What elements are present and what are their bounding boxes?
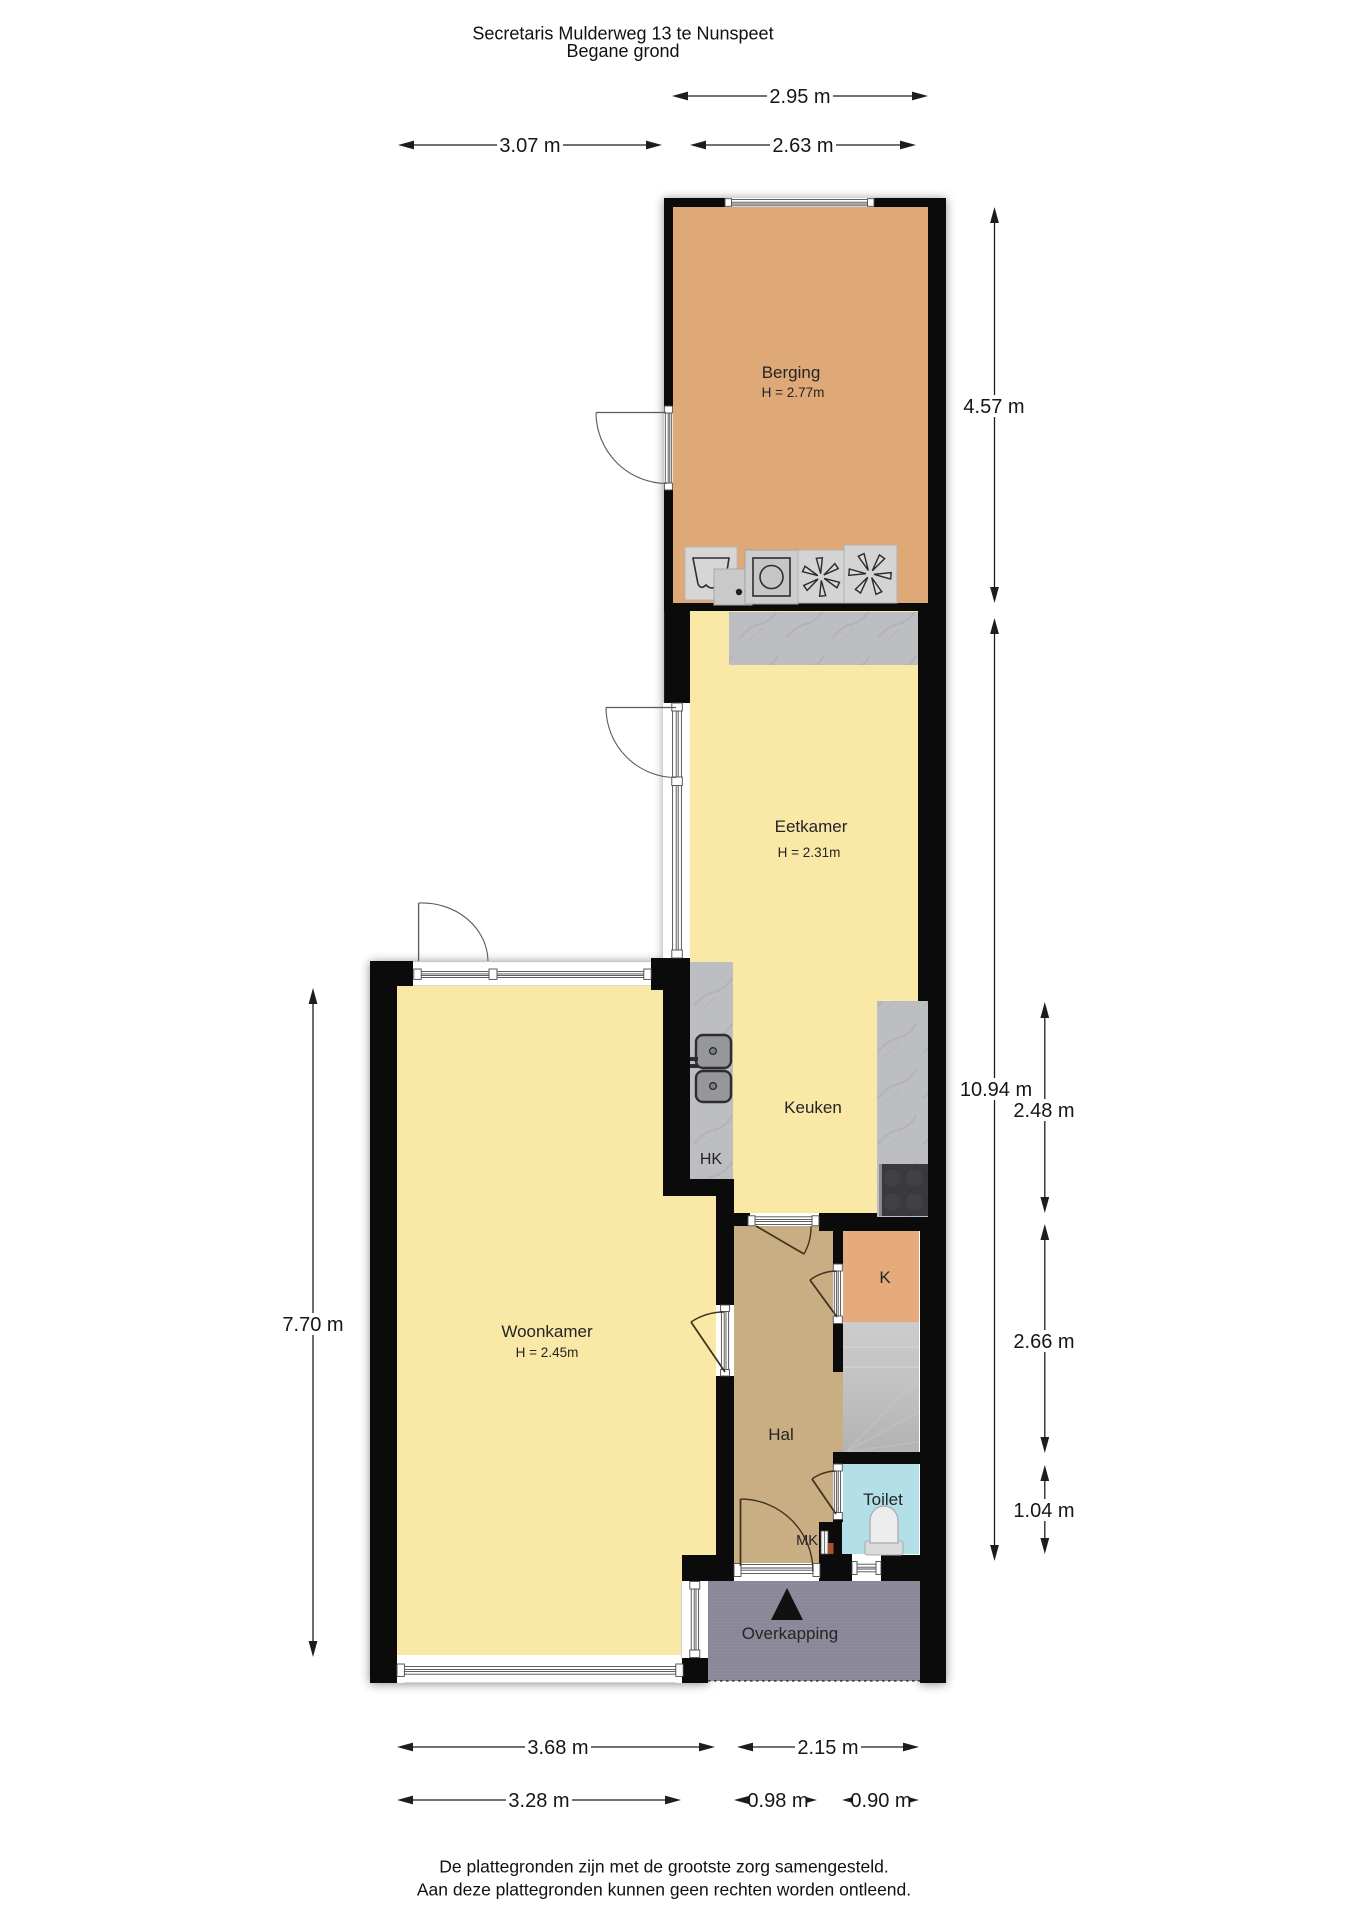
- svg-text:3.07 m: 3.07 m: [499, 135, 560, 157]
- svg-text:3.28 m: 3.28 m: [508, 1790, 569, 1812]
- svg-text:2.15 m: 2.15 m: [797, 1737, 858, 1759]
- svg-text:Woonkamer: Woonkamer: [501, 1322, 593, 1341]
- svg-text:HK: HK: [700, 1151, 723, 1168]
- svg-text:10.94 m: 10.94 m: [960, 1079, 1032, 1101]
- svg-text:2.66 m: 2.66 m: [1013, 1331, 1074, 1353]
- svg-text:1.04 m: 1.04 m: [1013, 1500, 1074, 1522]
- svg-text:H = 2.45m: H = 2.45m: [516, 1345, 579, 1360]
- svg-text:H = 2.77m: H = 2.77m: [762, 385, 825, 400]
- svg-text:0.98 m: 0.98 m: [747, 1790, 808, 1812]
- svg-text:2.48 m: 2.48 m: [1013, 1100, 1074, 1122]
- svg-text:K: K: [879, 1268, 891, 1287]
- svg-text:Berging: Berging: [762, 363, 821, 382]
- svg-text:Toilet: Toilet: [863, 1490, 903, 1509]
- svg-text:Keuken: Keuken: [784, 1098, 842, 1117]
- svg-text:2.63 m: 2.63 m: [772, 135, 833, 157]
- svg-text:0.90 m: 0.90 m: [850, 1790, 911, 1812]
- svg-text:Aan deze plattegronden kunnen: Aan deze plattegronden kunnen geen recht…: [417, 1880, 911, 1900]
- svg-text:Eetkamer: Eetkamer: [775, 817, 848, 836]
- svg-text:Overkapping: Overkapping: [742, 1624, 838, 1643]
- svg-text:4.57 m: 4.57 m: [963, 396, 1024, 418]
- svg-text:De plattegronden zijn met de g: De plattegronden zijn met de grootste zo…: [439, 1857, 888, 1877]
- svg-text:Hal: Hal: [768, 1425, 794, 1444]
- svg-text:MK: MK: [796, 1533, 818, 1549]
- svg-text:7.70 m: 7.70 m: [282, 1314, 343, 1336]
- svg-text:2.95 m: 2.95 m: [769, 86, 830, 108]
- svg-text:Begane grond: Begane grond: [566, 41, 679, 61]
- svg-text:H = 2.31m: H = 2.31m: [778, 845, 841, 860]
- svg-text:3.68 m: 3.68 m: [527, 1737, 588, 1759]
